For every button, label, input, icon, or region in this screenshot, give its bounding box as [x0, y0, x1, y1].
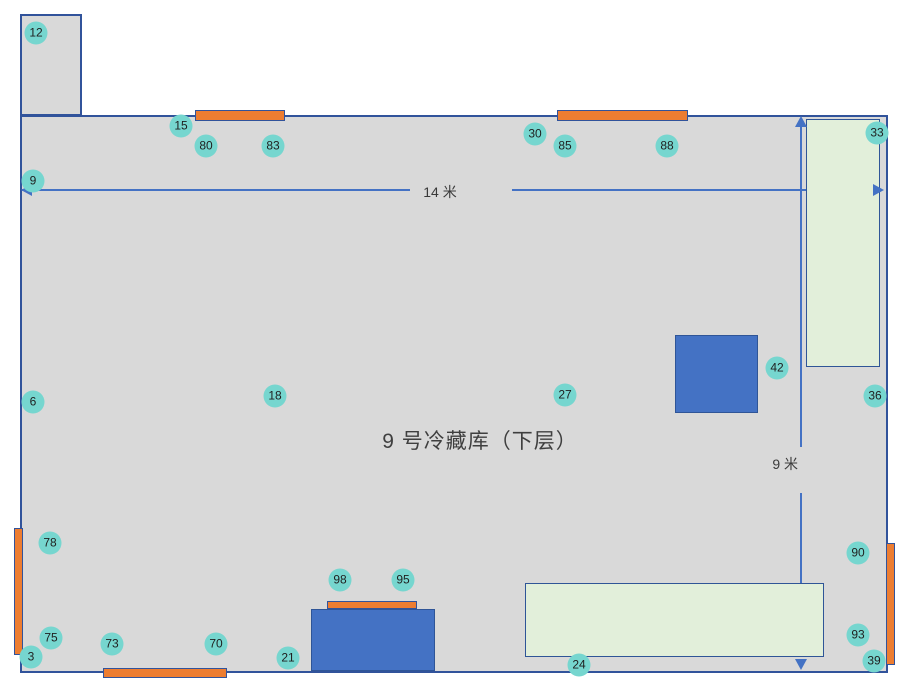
- height-dimension-line-bottom: [800, 493, 802, 583]
- sensor-marker-80[interactable]: 80: [195, 135, 218, 158]
- height-dimension-line-top: [800, 127, 802, 447]
- sensor-marker-9[interactable]: 9: [22, 170, 45, 193]
- arrow-right-icon: [873, 184, 884, 196]
- sensor-marker-88[interactable]: 88: [656, 135, 679, 158]
- sensor-marker-42[interactable]: 42: [766, 357, 789, 380]
- door-bar-1: [195, 110, 285, 121]
- width-dimension-line-right: [512, 189, 806, 191]
- door-bar-6: [327, 601, 417, 609]
- door-bar-5: [103, 668, 227, 678]
- sensor-marker-95[interactable]: 95: [392, 569, 415, 592]
- sensor-marker-6[interactable]: 6: [22, 391, 45, 414]
- floor-plan: 14 米 9 米 9 号冷藏库（下层） 12158083308588339618…: [0, 0, 912, 688]
- sensor-marker-21[interactable]: 21: [277, 647, 300, 670]
- sensor-marker-18[interactable]: 18: [264, 385, 287, 408]
- sensor-marker-24[interactable]: 24: [568, 654, 591, 677]
- sensor-marker-12[interactable]: 12: [25, 22, 48, 45]
- storage-zone-1: [806, 119, 880, 367]
- sensor-marker-15[interactable]: 15: [170, 115, 193, 138]
- arrow-up-icon: [795, 116, 807, 127]
- sensor-marker-83[interactable]: 83: [262, 135, 285, 158]
- sensor-marker-39[interactable]: 39: [863, 650, 886, 673]
- equipment-block-1: [675, 335, 758, 413]
- equipment-block-2: [311, 609, 435, 671]
- sensor-marker-3[interactable]: 3: [20, 646, 43, 669]
- sensor-marker-70[interactable]: 70: [205, 633, 228, 656]
- height-dimension-label: 9 米: [772, 454, 798, 474]
- width-dimension-line-left: [22, 189, 410, 191]
- door-bar-3: [14, 528, 23, 655]
- width-dimension-label: 14 米: [423, 182, 456, 202]
- sensor-marker-85[interactable]: 85: [554, 135, 577, 158]
- sensor-marker-78[interactable]: 78: [39, 532, 62, 555]
- door-bar-2: [557, 110, 688, 121]
- sensor-marker-98[interactable]: 98: [329, 569, 352, 592]
- door-bar-4: [886, 543, 895, 665]
- sensor-marker-30[interactable]: 30: [524, 123, 547, 146]
- sensor-marker-27[interactable]: 27: [554, 384, 577, 407]
- sensor-marker-90[interactable]: 90: [847, 542, 870, 565]
- sensor-marker-75[interactable]: 75: [40, 627, 63, 650]
- sensor-marker-73[interactable]: 73: [101, 633, 124, 656]
- sensor-marker-33[interactable]: 33: [866, 122, 889, 145]
- arrow-down-icon: [795, 659, 807, 670]
- sensor-marker-36[interactable]: 36: [864, 385, 887, 408]
- storage-zone-2: [525, 583, 824, 657]
- room-title: 9 号冷藏库（下层）: [382, 425, 578, 455]
- sensor-marker-93[interactable]: 93: [847, 624, 870, 647]
